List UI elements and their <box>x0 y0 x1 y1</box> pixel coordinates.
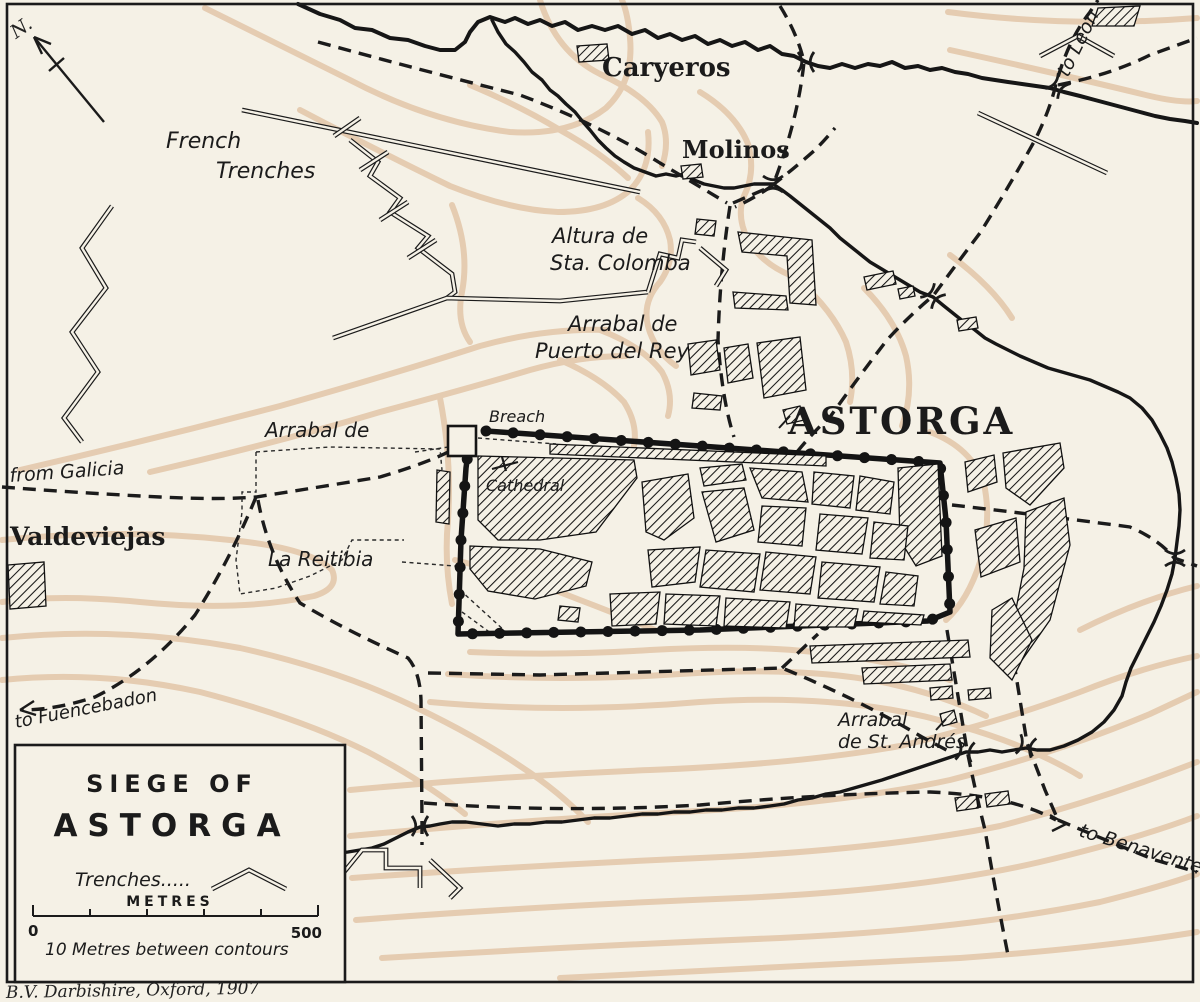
credit-signature: B.V. Darbishire, Oxford, 1907 <box>5 979 260 1002</box>
label-altura-1: Altura de <box>550 224 648 248</box>
breach-bastion <box>448 426 476 456</box>
scale-min-label: 0 <box>28 922 38 940</box>
label-caryeros: Caryeros <box>602 53 731 83</box>
label-breach: Breach <box>489 407 545 426</box>
label-reitibia-1: Arrabal de <box>263 418 369 442</box>
label-puerto-2: Puerto del Rey <box>535 339 690 363</box>
label-french-trenches-1: French <box>166 129 241 154</box>
map-canvas: N. Caryeros Molinos Valdeviejas ASTORGA … <box>0 0 1200 1002</box>
label-astorga: ASTORGA <box>787 399 1015 443</box>
label-st-andres-1: Arrabal <box>836 709 908 731</box>
label-valdeviejas: Valdeviejas <box>9 522 165 551</box>
legend-box: SIEGE OF ASTORGA Trenches..... METRES 0 … <box>15 745 345 982</box>
label-cathedral: Cathedral <box>486 476 565 495</box>
legend-title-2: ASTORGA <box>53 808 290 844</box>
scale-max-label: 500 <box>291 924 322 942</box>
legend-title-1: SIEGE OF <box>86 770 258 798</box>
map-page: N. Caryeros Molinos Valdeviejas ASTORGA … <box>0 0 1200 1002</box>
legend-trenches-label: Trenches..... <box>75 869 191 891</box>
label-reitibia-2: La Reitibia <box>268 547 373 571</box>
legend-contour-note: 10 Metres between contours <box>45 940 289 960</box>
label-molinos: Molinos <box>682 135 790 164</box>
label-puerto-1: Arrabal de <box>566 312 677 336</box>
label-altura-2: Sta. Colomba <box>550 251 691 275</box>
label-st-andres-2: de St. Andrés <box>838 731 966 753</box>
label-french-trenches-2: Trenches <box>216 159 315 184</box>
legend-scale-caption: METRES <box>126 894 213 910</box>
